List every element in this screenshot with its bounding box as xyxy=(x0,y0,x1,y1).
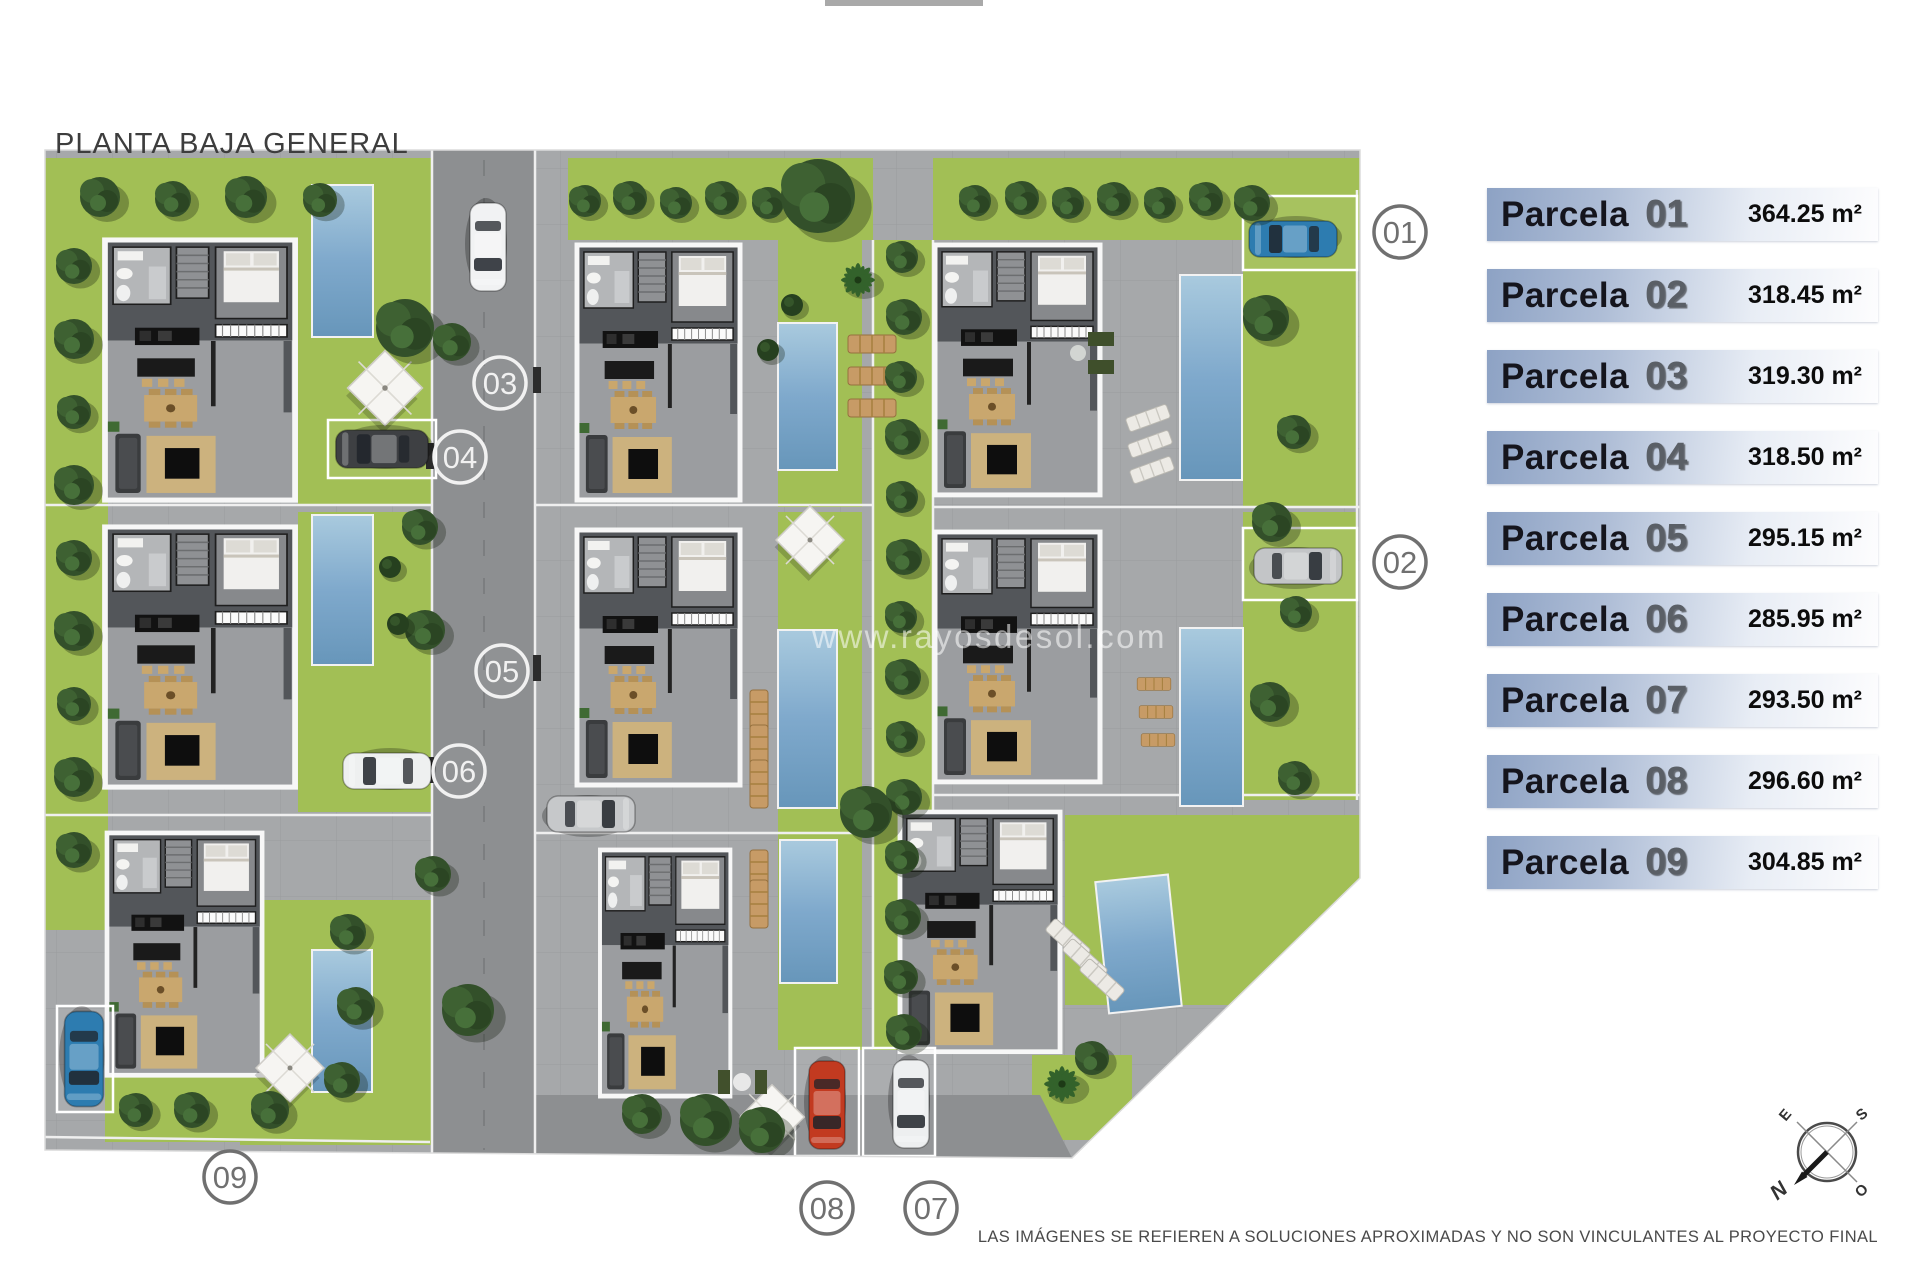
villa-building xyxy=(600,850,730,1096)
legend-label: Parcela xyxy=(1501,195,1629,235)
legend-area: 319.30 m² xyxy=(1748,362,1862,391)
plan-marker-08: 08 xyxy=(801,1182,853,1234)
plan-marker-03: 03 xyxy=(474,357,526,409)
car xyxy=(336,425,434,469)
compass-west: O xyxy=(1852,1180,1873,1201)
legend-number: 02 xyxy=(1645,274,1687,317)
legend-row-parcela-09: Parcela 09 304.85 m² xyxy=(1487,836,1878,889)
car xyxy=(343,748,436,790)
plan-marker-06: 06 xyxy=(433,745,485,797)
car xyxy=(59,1006,104,1106)
car xyxy=(888,1055,930,1148)
legend-row-parcela-02: Parcela 02 318.45 m² xyxy=(1487,269,1878,322)
legend-area: 318.45 m² xyxy=(1748,281,1862,310)
marker-number: 07 xyxy=(914,1191,948,1226)
plan-marker-01: 01 xyxy=(1374,206,1426,258)
villas xyxy=(105,240,1100,1096)
legend-area: 295.15 m² xyxy=(1748,524,1862,553)
legend-area: 285.95 m² xyxy=(1748,605,1862,634)
legend-label: Parcela xyxy=(1501,843,1629,883)
villa-building xyxy=(577,530,740,785)
page-title: PLANTA BAJA GENERAL xyxy=(55,128,409,161)
legend-number: 06 xyxy=(1645,598,1687,641)
site-plan-page: 01 02 03 04 05 06 07 08 09 E S xyxy=(0,0,1920,1280)
compass-south: S xyxy=(1853,1105,1872,1124)
plan-marker-04: 04 xyxy=(434,431,486,483)
marker-number: 08 xyxy=(810,1191,844,1226)
compass-rose-icon: E S O N xyxy=(1766,1105,1873,1205)
legend-label: Parcela xyxy=(1501,357,1629,397)
legend-number: 09 xyxy=(1645,841,1687,884)
legend-number: 07 xyxy=(1645,679,1687,722)
plan-marker-05: 05 xyxy=(476,645,528,697)
legend-label: Parcela xyxy=(1501,681,1629,721)
pool xyxy=(1180,275,1242,480)
legend-area: 304.85 m² xyxy=(1748,848,1862,877)
marker-number: 04 xyxy=(443,440,477,475)
legend-label: Parcela xyxy=(1501,276,1629,316)
pool xyxy=(780,840,837,983)
legend-number: 08 xyxy=(1645,760,1687,803)
marker-number: 01 xyxy=(1383,215,1417,250)
car xyxy=(542,795,635,837)
disclaimer-text: LAS IMÁGENES SE REFIEREN A SOLUCIONES AP… xyxy=(978,1228,1878,1247)
compass-east: E xyxy=(1776,1106,1795,1125)
marker-number: 06 xyxy=(442,754,476,789)
legend-area: 296.60 m² xyxy=(1748,767,1862,796)
legend-row-parcela-01: Parcela 01 364.25 m² xyxy=(1487,188,1878,241)
legend-label: Parcela xyxy=(1501,438,1629,478)
marker-number: 05 xyxy=(485,654,519,689)
plan-marker-07: 07 xyxy=(905,1182,957,1234)
legend-row-parcela-07: Parcela 07 293.50 m² xyxy=(1487,674,1878,727)
villa-building xyxy=(935,532,1100,782)
legend-area: 364.25 m² xyxy=(1748,200,1862,229)
legend-label: Parcela xyxy=(1501,600,1629,640)
car xyxy=(1249,547,1342,589)
parcel-legend: Parcela 01 364.25 m² Parcela 02 318.45 m… xyxy=(1487,188,1878,917)
site-plan xyxy=(45,150,1360,1163)
car xyxy=(465,198,507,291)
legend-row-parcela-08: Parcela 08 296.60 m² xyxy=(1487,755,1878,808)
villa-building xyxy=(105,527,295,787)
plan-marker-09: 09 xyxy=(204,1151,256,1203)
villa-building xyxy=(105,240,295,500)
legend-number: 03 xyxy=(1645,355,1687,398)
villa-building xyxy=(935,245,1100,495)
legend-area: 293.50 m² xyxy=(1748,686,1862,715)
top-crop-strip xyxy=(825,0,983,6)
marker-number: 03 xyxy=(483,366,517,401)
legend-row-parcela-04: Parcela 04 318.50 m² xyxy=(1487,431,1878,484)
villa-building xyxy=(577,245,740,500)
pool xyxy=(1180,628,1243,806)
plan-marker-02: 02 xyxy=(1374,536,1426,588)
legend-area: 318.50 m² xyxy=(1748,443,1862,472)
marker-number: 09 xyxy=(213,1160,247,1195)
pool xyxy=(778,630,837,808)
legend-row-parcela-06: Parcela 06 285.95 m² xyxy=(1487,593,1878,646)
marker-number: 02 xyxy=(1383,545,1417,580)
car xyxy=(804,1056,846,1149)
pool xyxy=(312,515,373,665)
legend-number: 04 xyxy=(1645,436,1687,479)
legend-label: Parcela xyxy=(1501,762,1629,802)
pool xyxy=(778,323,837,470)
legend-number: 05 xyxy=(1645,517,1687,560)
legend-row-parcela-03: Parcela 03 319.30 m² xyxy=(1487,350,1878,403)
compass-north: N xyxy=(1766,1177,1793,1205)
legend-label: Parcela xyxy=(1501,519,1629,559)
legend-row-parcela-05: Parcela 05 295.15 m² xyxy=(1487,512,1878,565)
legend-number: 01 xyxy=(1645,193,1687,236)
villa-building xyxy=(107,833,262,1075)
